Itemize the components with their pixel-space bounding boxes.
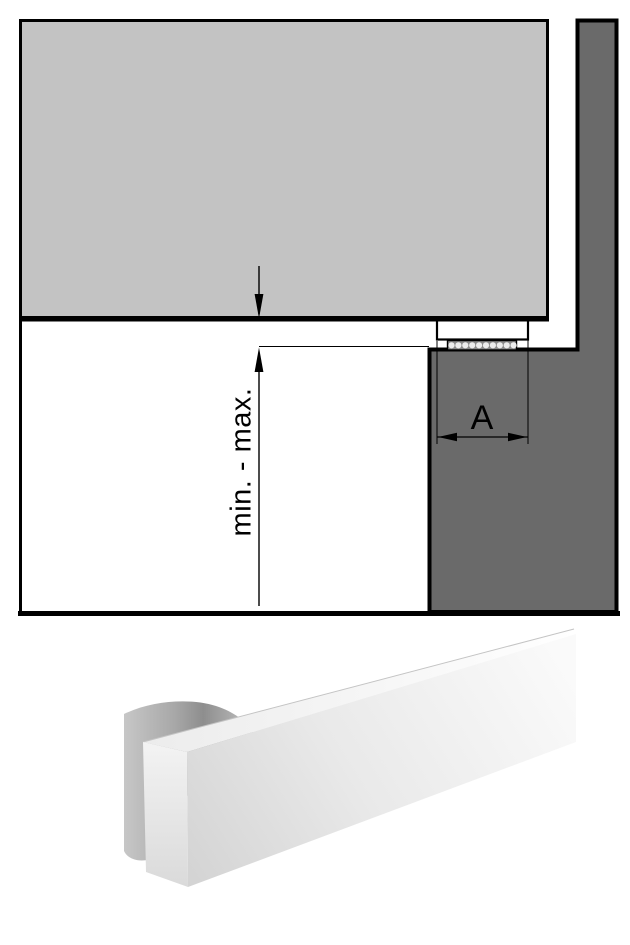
- window-frame-panel: [21, 21, 548, 318]
- frame-rebate-box: [437, 320, 528, 340]
- strip-end-face: [143, 742, 188, 887]
- product-installation-sheet: A min. - max.: [0, 0, 630, 945]
- dimension-min-max-label: min. - max.: [226, 388, 258, 537]
- strip-front-face: [187, 634, 576, 887]
- dimension-min-max-arrow-up-icon: [255, 348, 264, 373]
- sealing-strip-3d-illustration: [0, 615, 630, 945]
- compressed-sealing-tape: [448, 341, 517, 351]
- installation-cross-section-diagram: A min. - max.: [0, 0, 630, 616]
- dimension-a-label: A: [471, 399, 494, 437]
